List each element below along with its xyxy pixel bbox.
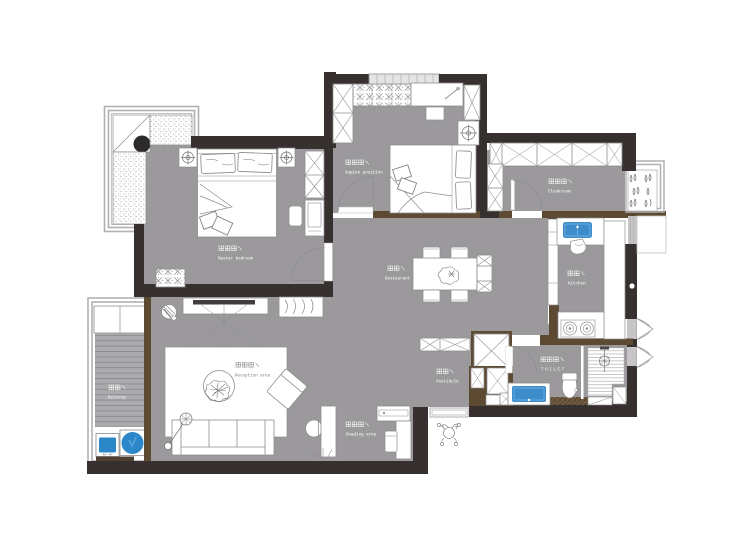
svg-text:Restaurant: Restaurant [385, 278, 411, 282]
svg-text:Cloakroom: Cloakroom [548, 190, 571, 195]
svg-text:Master bedroom: Master bedroom [218, 257, 254, 262]
svg-text:Kitchen: Kitchen [568, 282, 586, 287]
svg-text:Balcony: Balcony [108, 396, 126, 401]
svg-text:Supine position: Supine position [345, 171, 383, 176]
svg-text:Vestibule: Vestibule [436, 380, 459, 385]
svg-text:Reading area: Reading area [346, 433, 377, 438]
svg-text:Reception area: Reception area [235, 374, 271, 379]
svg-text:TOILET: TOILET [541, 369, 566, 373]
